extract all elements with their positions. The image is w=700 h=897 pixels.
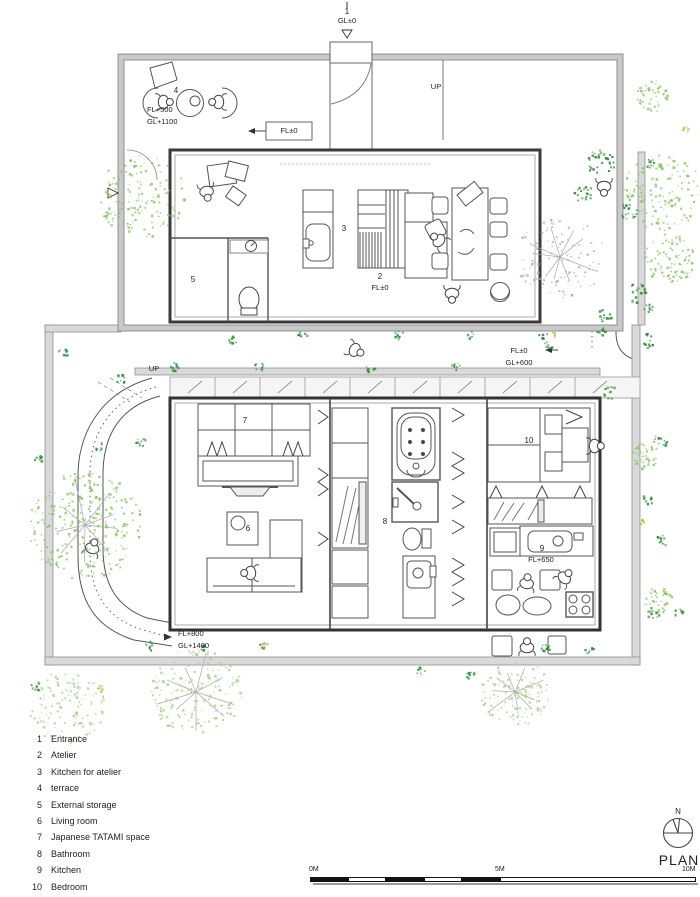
legend-item-number: 10 — [28, 882, 42, 892]
legend-item-label: Kitchen for atelier — [51, 767, 121, 777]
room-number-entrance: 1 — [345, 7, 349, 16]
legend-item: 6Living room — [28, 816, 150, 832]
legend-item-number: 9 — [28, 865, 42, 875]
legend-item-number: 6 — [28, 816, 42, 826]
legend-item-label: Living room — [51, 816, 98, 826]
north-indicator — [664, 819, 693, 848]
legend-item-number: 8 — [28, 849, 42, 859]
lower-terrace-fl-label: FL+800 — [178, 630, 204, 639]
room-number-atelier-kitchen: 3 — [342, 224, 346, 233]
room-number-atelier: 2 — [378, 272, 382, 281]
scale-end-label: 10M — [682, 866, 696, 873]
legend-item-label: terrace — [51, 783, 79, 793]
room-number-tatami: 7 — [243, 416, 247, 425]
up-steps-label: UP — [149, 365, 159, 374]
legend-item-label: Japanese TATAMI space — [51, 832, 150, 842]
atelier-fl-label: FL±0 — [371, 284, 388, 293]
scale-start-label: 0M — [309, 866, 319, 873]
up-ramp-label: UP — [431, 83, 441, 92]
terrace-fl-label: FL+500 — [147, 106, 173, 115]
room-number-living: 6 — [246, 524, 250, 533]
legend-item-label: Entrance — [51, 734, 87, 744]
legend-item-number: 7 — [28, 832, 42, 842]
legend-item: 8Bathroom — [28, 849, 150, 865]
legend-item-label: Atelier — [51, 750, 77, 760]
legend-item-number: 3 — [28, 767, 42, 777]
legend-item: 4terrace — [28, 783, 150, 799]
room-legend: 1Entrance 2Atelier 3Kitchen for atelier … — [28, 734, 150, 897]
court-gl-label: GL+600 — [506, 359, 533, 368]
legend-item-label: Bathroom — [51, 849, 90, 859]
legend-item-number: 4 — [28, 783, 42, 793]
legend-item: 7Japanese TATAMI space — [28, 832, 150, 848]
court-fl-label: FL±0 — [510, 347, 527, 356]
upper-building — [108, 2, 623, 331]
terrace-gl-label: GL+1100 — [147, 118, 178, 127]
room-number-bathroom: 8 — [383, 517, 387, 526]
legend-item: 9Kitchen — [28, 865, 150, 881]
north-label: N — [664, 807, 692, 816]
kitchen-fl-label: FL+650 — [528, 556, 554, 565]
legend-item-number: 1 — [28, 734, 42, 744]
legend-item-label: External storage — [51, 800, 117, 810]
room-number-storage: 5 — [191, 275, 195, 284]
entrance-level-label: GL±0 — [338, 17, 356, 26]
legend-item: 3Kitchen for atelier — [28, 767, 150, 783]
landing-fl-label: FL±0 — [280, 127, 297, 136]
legend-item: 5External storage — [28, 800, 150, 816]
room-number-kitchen: 9 — [540, 544, 544, 553]
room-number-bedroom: 10 — [525, 436, 534, 445]
legend-item-label: Kitchen — [51, 865, 81, 875]
legend-item: 1Entrance — [28, 734, 150, 750]
middle-deck — [170, 377, 640, 398]
room-number-terrace: 4 — [174, 86, 178, 95]
legend-item-number: 5 — [28, 800, 42, 810]
legend-item-label: Bedroom — [51, 882, 88, 892]
legend-item-number: 2 — [28, 750, 42, 760]
floor-plan-page: 1 GL±0 4 FL+500 GL+1100 FL±0 UP 3 2 FL±0… — [0, 0, 700, 897]
scale-mid-label: 5M — [495, 866, 505, 873]
lower-terrace-gl-label: GL+1400 — [178, 642, 209, 651]
legend-item: 2Atelier — [28, 750, 150, 766]
legend-item: 10Bedroom — [28, 882, 150, 897]
